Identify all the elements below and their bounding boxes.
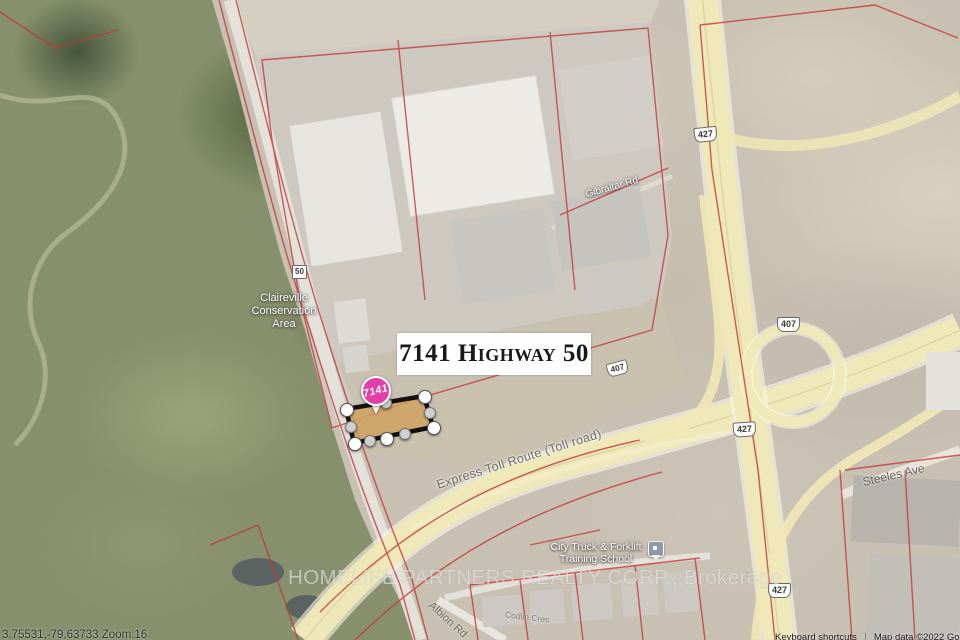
marker-label: 7141 [362,382,390,400]
parcel-handle[interactable] [364,435,376,447]
address-label: 7141 Highway 50 [399,340,589,368]
coordinates-status: 3.75531,-79.63733 Zoom:16 [2,629,147,640]
shield-hwy-50: 50 [292,265,307,279]
parcel-handle[interactable] [348,437,362,451]
attribution-bar: Keyboard shortcuts Map data ©2022 Google [775,632,960,640]
parcel-handle[interactable] [418,390,432,404]
map-data-attribution: Map data ©2022 Google [874,632,960,640]
parcel-handle[interactable] [380,432,394,446]
parcel-handle[interactable] [424,407,436,419]
parcel-handle[interactable] [340,403,354,417]
shield-hwy-407: 407 [777,317,800,332]
parcel-handle[interactable] [427,421,441,435]
map-canvas[interactable]: 7141 7141 Highway 50 Claireville Conserv… [0,0,960,640]
shield-hwy-427: 427 [733,421,757,438]
parcel-handle[interactable] [345,421,357,433]
shield-hwy-427: 427 [768,583,791,598]
address-card: 7141 Highway 50 [397,333,591,375]
keyboard-shortcuts-link[interactable]: Keyboard shortcuts [775,632,857,640]
marker-pin-icon: 7141 [361,376,391,406]
attribution-divider [865,633,866,640]
parcel-handle[interactable] [399,428,411,440]
property-marker[interactable]: 7141 [361,376,391,418]
